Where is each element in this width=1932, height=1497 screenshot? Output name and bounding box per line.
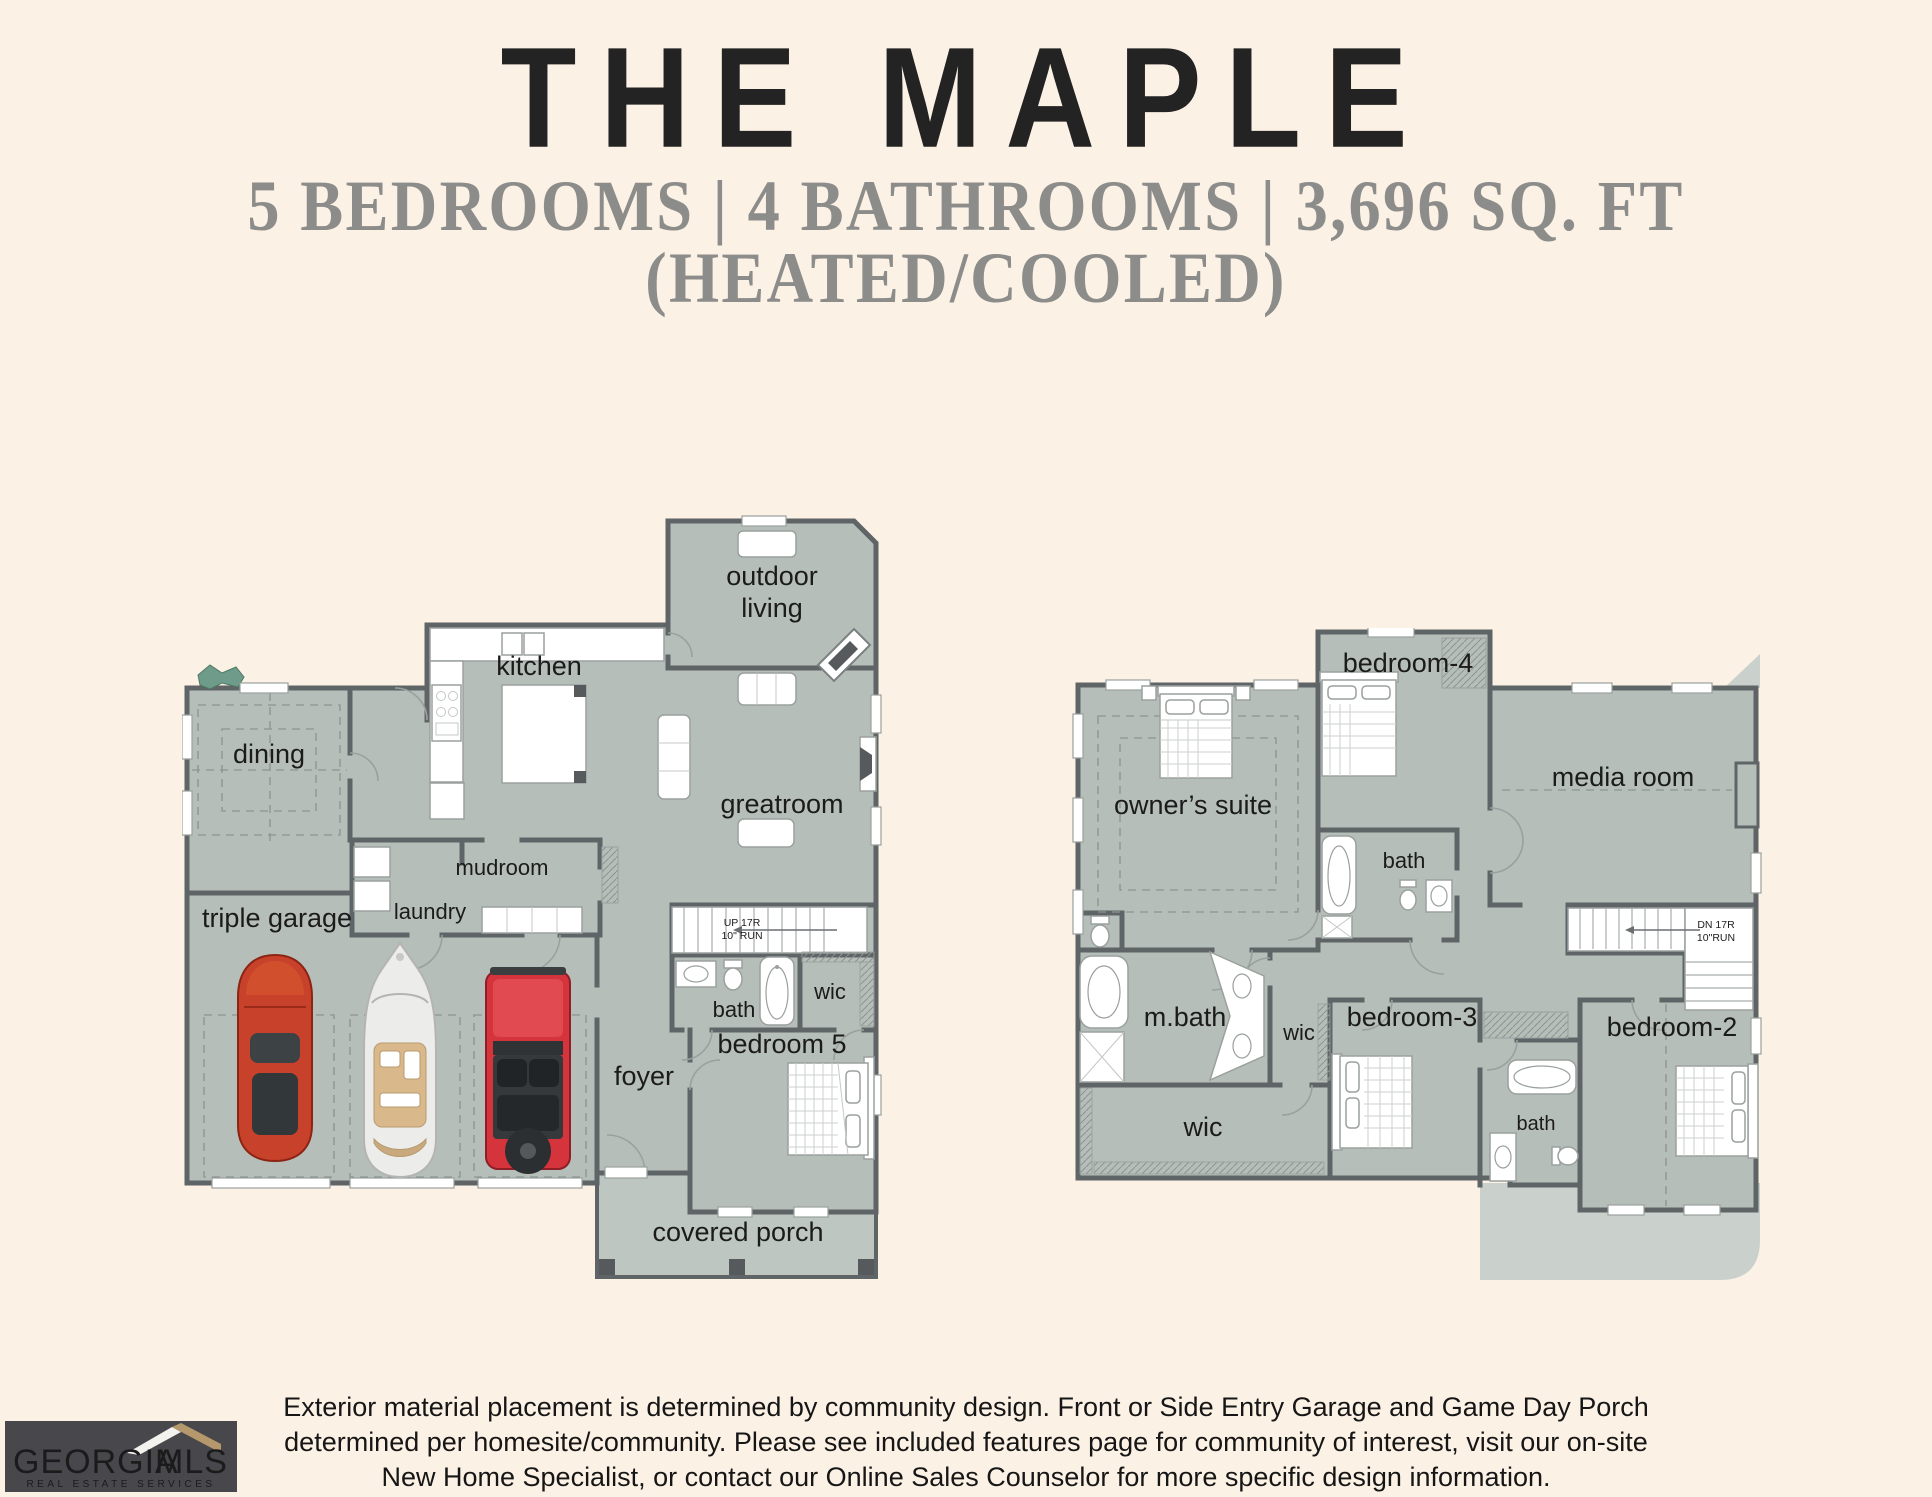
room-label-laundry: laundry xyxy=(394,899,466,924)
kitchen-island xyxy=(502,685,586,783)
tub-icon xyxy=(1508,1060,1576,1094)
room-label-dining: dining xyxy=(233,739,305,769)
tub-icon xyxy=(1080,956,1128,1028)
stairs-icon xyxy=(672,907,867,953)
first-floor-plan: outdoor living kitchen dining greatroom … xyxy=(182,515,882,1285)
tub-icon xyxy=(760,957,794,1025)
room-label-triple-garage: triple garage xyxy=(202,903,352,933)
room-label-bath4: bath xyxy=(1383,848,1426,873)
logo-text-georgia: GEORGIA xyxy=(13,1443,179,1481)
plant-icon xyxy=(198,665,244,689)
logo-text-mls: MLS xyxy=(155,1443,228,1481)
room-label-wic: wic xyxy=(813,979,846,1004)
disclaimer-line-1: Exterior material placement is determine… xyxy=(0,1390,1932,1425)
georgia-mls-logo-art: GEORGIA MLS REAL ESTATE SERVICES xyxy=(5,1421,237,1492)
dryer-icon xyxy=(354,881,390,911)
room-label-mbath: m.bath xyxy=(1144,1002,1227,1032)
room-label-bath2: bath xyxy=(1517,1113,1556,1135)
loveseat-icon xyxy=(738,673,796,705)
room-label-mudroom: mudroom xyxy=(456,855,549,880)
georgia-mls-logo: GEORGIA MLS REAL ESTATE SERVICES xyxy=(5,1421,237,1492)
bed-icon xyxy=(1676,1064,1758,1158)
bed-icon xyxy=(788,1057,874,1159)
media-nook xyxy=(1736,763,1758,827)
room-label-foyer: foyer xyxy=(614,1061,674,1091)
room-label-bedroom4: bedroom-4 xyxy=(1343,648,1474,678)
garage-area xyxy=(204,943,586,1177)
stairs-label-up: UP 17R xyxy=(724,917,761,929)
jeep-icon xyxy=(486,967,570,1174)
disclaimer-text: Exterior material placement is determine… xyxy=(0,1390,1932,1495)
toilet-icon xyxy=(724,960,742,990)
sofa-icon xyxy=(658,715,690,799)
toilet-icon xyxy=(1552,1147,1578,1165)
toilet-icon xyxy=(1091,916,1109,947)
stairs-label-run: 10"RUN xyxy=(1697,932,1735,944)
sink-icon xyxy=(676,961,716,987)
bed-icon xyxy=(1320,672,1398,776)
room-label-wic-small: wic xyxy=(1282,1020,1315,1045)
sink-icon xyxy=(1426,880,1452,912)
stairs-label-dn: DN 17R xyxy=(1697,919,1735,931)
sports-car-icon xyxy=(238,955,312,1161)
sofa-icon xyxy=(738,531,796,557)
wic-small-hatch xyxy=(1318,1004,1330,1080)
page-title: THE MAPLE xyxy=(0,16,1932,180)
logo-tagline: REAL ESTATE SERVICES xyxy=(26,1479,215,1490)
closet-hatch xyxy=(1484,1012,1568,1038)
stove-icon xyxy=(432,685,461,741)
stairs-label-run: 10" RUN xyxy=(721,930,762,942)
flyer-page: { "header": { "title": "THE MAPLE", "sub… xyxy=(0,0,1932,1492)
room-label-outdoor-living: outdoor xyxy=(726,561,818,591)
washer-icon xyxy=(354,847,390,877)
tub-icon xyxy=(1322,836,1356,914)
subtitle-heated-cooled: (HEATED/COOLED) xyxy=(0,238,1932,320)
subtitle-specs: 5 BEDROOMS | 4 BATHROOMS | 3,696 SQ. FT xyxy=(0,166,1932,248)
room-label-wic-large: wic xyxy=(1183,1112,1223,1142)
disclaimer-line-2: determined per homesite/community. Pleas… xyxy=(0,1425,1932,1460)
bed-icon xyxy=(1332,1054,1412,1150)
loveseat-icon xyxy=(738,819,794,847)
room-label-bedroom3: bedroom-3 xyxy=(1347,1002,1478,1032)
pantry-closet xyxy=(602,847,618,903)
front-door xyxy=(605,1167,647,1178)
room-label-bedroom2: bedroom-2 xyxy=(1607,1012,1738,1042)
room-label-outdoor-living-2: living xyxy=(741,593,803,623)
fridge-icon xyxy=(430,783,464,819)
room-label-covered-porch: covered porch xyxy=(652,1217,823,1247)
room-label-bath: bath xyxy=(713,997,756,1022)
room-label-kitchen: kitchen xyxy=(496,651,582,681)
room-label-greatroom: greatroom xyxy=(720,789,843,819)
second-floor-plan: owner’s suite bedroom-4 media room bath … xyxy=(1072,628,1772,1298)
room-label-owners-suite: owner’s suite xyxy=(1114,790,1272,820)
disclaimer-line-3: New Home Specialist, or contact our Onli… xyxy=(0,1460,1932,1495)
sink-icon xyxy=(1490,1133,1516,1181)
room-label-bedroom5: bedroom 5 xyxy=(717,1029,846,1059)
toilet-icon xyxy=(1400,880,1416,910)
tv-icon xyxy=(860,737,876,791)
room-label-media-room: media room xyxy=(1552,762,1695,792)
